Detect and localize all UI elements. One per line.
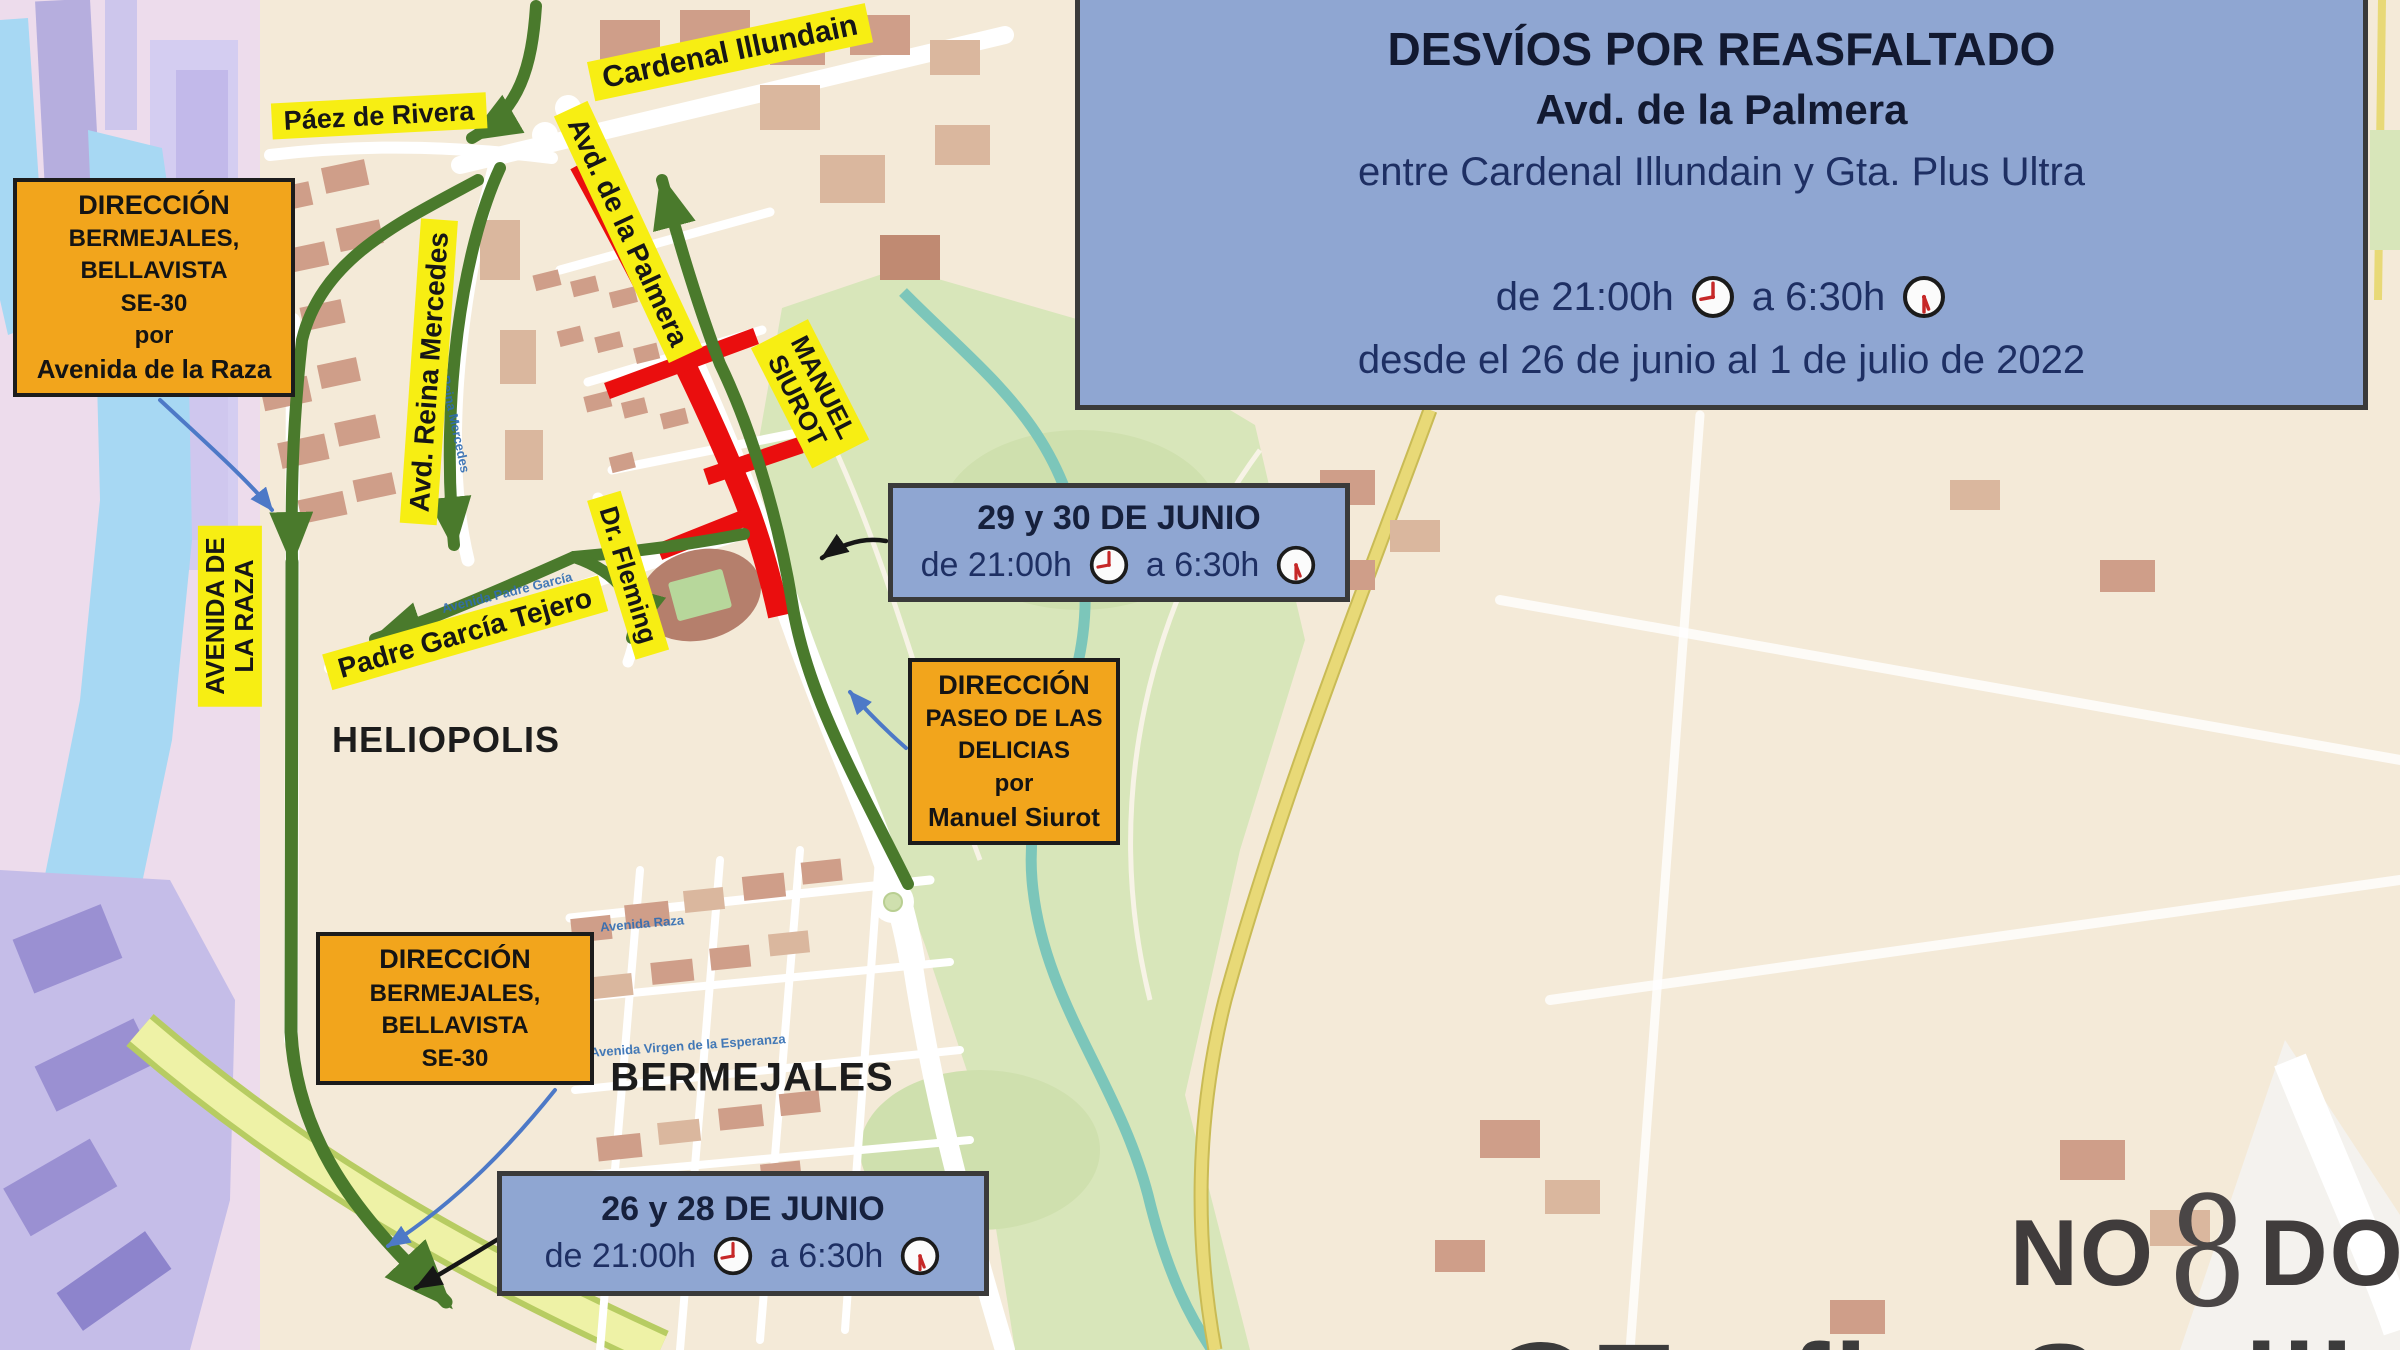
sign-delicias-line1: DIRECCIÓN xyxy=(918,670,1110,701)
sign-delicias-line2: PASEO DE LAS xyxy=(918,705,1110,733)
clock-icon-0630 xyxy=(1275,544,1317,586)
sign-direccion-raza: DIRECCIÓN BERMEJALES, BELLAVISTA SE-30 p… xyxy=(13,178,295,397)
nosdo-do: DO xyxy=(2260,1206,2400,1300)
sign-direccion-se30: DIRECCIÓN BERMEJALES, BELLAVISTA SE-30 xyxy=(316,932,594,1085)
road-label-raza: AVENIDA DE LA RAZA xyxy=(198,525,262,706)
sign-delicias-line5: Manuel Siurot xyxy=(918,802,1110,833)
callout-26-28-time-row: de 21:00h a 6:30h xyxy=(545,1235,942,1277)
nosdo-no: NO xyxy=(2010,1206,2155,1300)
sign-se30-line4: SE-30 xyxy=(326,1045,584,1073)
callout-26-28-title: 26 y 28 DE JUNIO xyxy=(601,1190,884,1229)
header-title: DESVÍOS POR REASFALTADO xyxy=(1080,22,2363,76)
header-scope: entre Cardenal Illundain y Gta. Plus Ult… xyxy=(1080,150,2363,195)
sign-raza-line1: DIRECCIÓN xyxy=(23,190,285,221)
clock-icon-0630 xyxy=(1901,274,1947,320)
sign-delicias-line4: por xyxy=(918,770,1110,798)
clock-icon-0630 xyxy=(899,1235,941,1277)
clock-icon-2100 xyxy=(1088,544,1130,586)
callout-29-30-title: 29 y 30 DE JUNIO xyxy=(977,499,1260,538)
callout-29-30-time-to: a 6:30h xyxy=(1146,546,1259,585)
sign-direccion-delicias: DIRECCIÓN PASEO DE LAS DELICIAS por Manu… xyxy=(908,658,1120,845)
sign-se30-line1: DIRECCIÓN xyxy=(326,944,584,975)
callout-26-28-time-to: a 6:30h xyxy=(770,1237,883,1276)
road-label-raza-line1: AVENIDA DE xyxy=(201,537,230,694)
sign-raza-line4: SE-30 xyxy=(23,290,285,318)
nosdo-logo: NO 8 DO xyxy=(2010,1183,2400,1323)
roundabout-illundain xyxy=(532,122,558,148)
header-time-to: a 6:30h xyxy=(1752,275,1885,320)
header-dates: desde el 26 de junio al 1 de julio de 20… xyxy=(1080,338,2363,383)
callout-29-30-time-row: de 21:00h a 6:30h xyxy=(921,544,1318,586)
sign-raza-line6: Avenida de la Raza xyxy=(23,354,285,385)
sign-delicias-line3: DELICIAS xyxy=(918,737,1110,765)
detour-poster: Avenida Padre García Avda Reina Mercedes… xyxy=(0,0,2400,1350)
area-label-heliopolis: HELIOPOLIS xyxy=(332,719,560,761)
callout-29-30-time-from: de 21:00h xyxy=(921,546,1072,585)
callout-26-28: 26 y 28 DE JUNIO de 21:00h a 6:30h xyxy=(497,1171,989,1296)
header-panel: DESVÍOS POR REASFALTADO Avd. de la Palme… xyxy=(1075,0,2368,410)
area-label-bermejales: BERMEJALES xyxy=(610,1056,893,1101)
sign-raza-line5: por xyxy=(23,322,285,350)
callout-26-28-time-from: de 21:00h xyxy=(545,1237,696,1276)
nosdo-madeja-icon: 8 xyxy=(2168,1183,2247,1323)
clock-icon-2100 xyxy=(712,1235,754,1277)
callout-29-30: 29 y 30 DE JUNIO de 21:00h a 6:30h xyxy=(888,483,1350,602)
sign-se30-line2: BERMEJALES, xyxy=(326,980,584,1008)
header-time-row: de 21:00h a 6:30h xyxy=(1080,274,2363,320)
header-subtitle: Avd. de la Palmera xyxy=(1080,86,2363,134)
sign-se30-line3: BELLAVISTA xyxy=(326,1012,584,1040)
header-time-from: de 21:00h xyxy=(1496,275,1674,320)
sign-raza-line2: BERMEJALES, xyxy=(23,225,285,253)
port-zone-south xyxy=(0,870,235,1350)
clock-icon-2100 xyxy=(1690,274,1736,320)
twitter-handle-partial: @TraficoSevilla xyxy=(1478,1318,2400,1350)
map-sliver-park xyxy=(2370,130,2400,250)
sign-raza-line3: BELLAVISTA xyxy=(23,257,285,285)
road-label-raza-line2: LA RAZA xyxy=(230,537,259,694)
